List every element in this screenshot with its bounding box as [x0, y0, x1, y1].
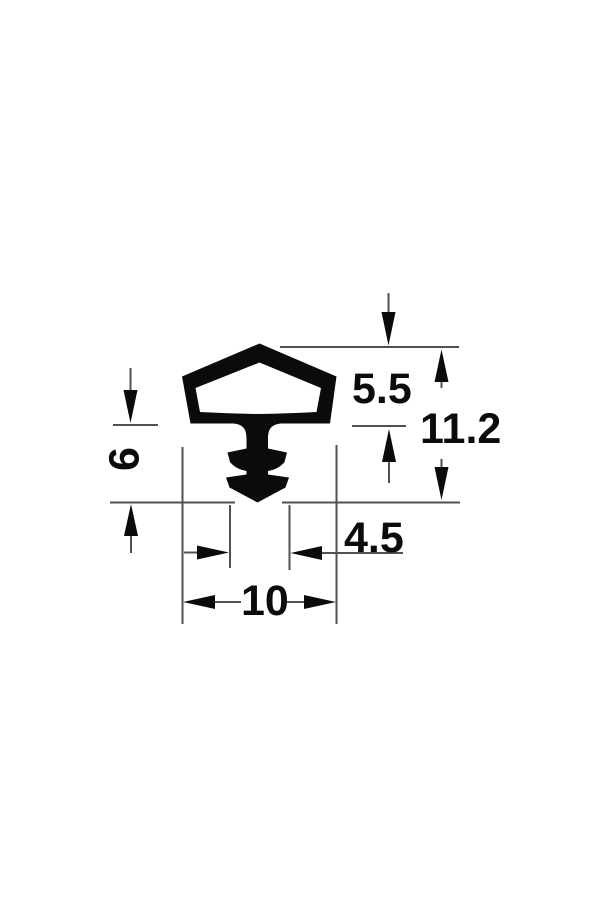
dim-label-cap-height: 5.5 — [352, 368, 412, 411]
dim-label-stem-height: 6 — [104, 447, 147, 471]
dim-label-overall-height: 11.2 — [420, 408, 501, 451]
arrowhead-up-icon — [124, 504, 138, 536]
seal-profile-shape — [182, 344, 337, 503]
arrowhead-left-icon — [183, 595, 215, 609]
arrowhead-right-icon — [197, 546, 229, 560]
arrowhead-down-icon — [382, 312, 396, 346]
arrowhead-left-icon — [291, 546, 323, 560]
arrowhead-up-icon — [382, 429, 396, 462]
arrowhead-down-icon — [435, 467, 449, 500]
arrowhead-up-icon — [435, 350, 449, 383]
profile-dimension-drawing — [0, 0, 600, 900]
drawing-canvas: 5.5 11.2 6 4.5 10 — [0, 0, 600, 900]
seal-profile-outline — [182, 344, 337, 503]
arrowhead-down-icon — [124, 390, 138, 423]
dim-label-barb-width: 4.5 — [344, 517, 404, 560]
arrowhead-right-icon — [304, 595, 336, 609]
dim-label-overall-width: 10 — [241, 580, 289, 623]
